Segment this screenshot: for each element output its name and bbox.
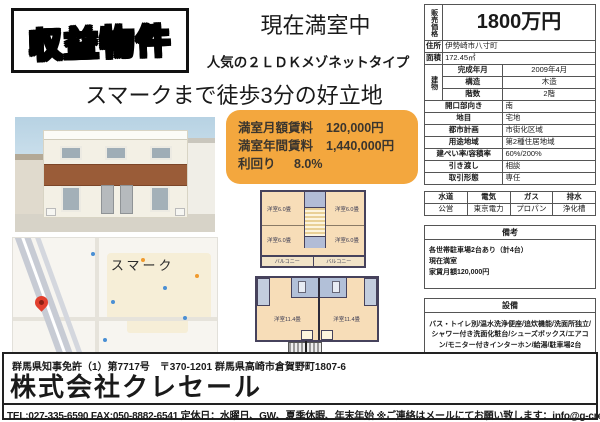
gas-label: ガス: [510, 192, 553, 204]
window-1f: [150, 186, 170, 212]
handover-label: 引き渡し: [425, 161, 503, 173]
bathtub-icon: [298, 281, 306, 293]
photo-main-building: [43, 130, 188, 218]
electricity-value: 東京電力: [467, 204, 510, 216]
equipment-box: 設備 バス・トイレ別/温水洗浄便座/追炊機能/洗面所独立/シャワー付き洗面化粧台…: [424, 298, 596, 361]
gas-value: プロパン: [510, 204, 553, 216]
floorplan-closet: [257, 278, 270, 306]
remarks-body: 各世帯駐車場2台あり（計4台） 現在満室 家賃月額120,000円: [425, 240, 595, 288]
table-row: 構造 木造: [425, 77, 596, 89]
handover-value: 相談: [503, 161, 596, 173]
floorplan-closet: [364, 278, 377, 306]
floors-label: 階数: [443, 89, 503, 101]
room-label: 洋室11.4畳: [333, 315, 360, 323]
floorplan-2f: 洋室6.0畳 洋室6.0畳 洋室6.0畳 洋室6.0畳 バルコニー バルコニー: [260, 190, 366, 268]
land-category-value: 宅地: [503, 113, 596, 125]
table-row: 取引形態 専任: [425, 173, 596, 185]
area-value: 172.45㎡: [443, 53, 596, 65]
map-poi-dot: [111, 300, 115, 304]
price-row: 販売価格 1800万円: [425, 5, 596, 41]
room-label: 洋室6.0畳: [335, 205, 359, 213]
balcony-band: [44, 164, 187, 186]
table-row: 開口部向き 南: [425, 101, 596, 113]
transaction-type-value: 専任: [503, 173, 596, 185]
building-fascia: [44, 131, 187, 140]
map-road: [95, 238, 99, 354]
floorplan-closet: [305, 192, 325, 208]
badge-label: 収益物件: [27, 14, 173, 68]
zoning-label: 用途地域: [425, 137, 503, 149]
balcony-label: バルコニー: [262, 257, 314, 266]
building-label: 建物: [425, 65, 443, 101]
floorplan-entrance: [321, 330, 333, 340]
utilities-header-row: 水道 電気 ガス 排水: [425, 192, 596, 204]
built-date-label: 完成年月: [443, 65, 503, 77]
window-2f: [150, 146, 172, 160]
land-category-label: 地目: [425, 113, 503, 125]
rent-annual-value: 1,440,000円: [326, 137, 394, 155]
utilities-value-row: 公営 東京電力 プロパン 浄化槽: [425, 204, 596, 216]
headline-status: 現在満室中: [218, 8, 413, 40]
window-2f: [105, 146, 127, 160]
yield-value: 8.0%: [294, 155, 323, 173]
rent-summary-box: 満室月額賃料 120,000円 満室年間賃料 1,440,000円 利回り 8.…: [226, 110, 418, 184]
table-row: 地目 宅地: [425, 113, 596, 125]
room-label: 洋室6.0畳: [267, 236, 291, 244]
city-planning-label: 都市計画: [425, 125, 503, 137]
price-value: 1800万円: [443, 5, 596, 41]
floorplan-stairs: [304, 192, 326, 248]
balcony-label: バルコニー: [314, 257, 365, 266]
facing-value: 南: [503, 101, 596, 113]
income-property-badge: 収益物件: [11, 8, 189, 73]
company-footer: 群馬県知事免許（1）第7717号 〒370-1201 群馬県高崎市倉賀野町180…: [2, 352, 598, 420]
floorplan-party-wall: [318, 278, 320, 340]
headline-location: スマークまで徒歩3分の好立地: [48, 78, 420, 110]
table-row: 住所 伊勢崎市八寸町: [425, 41, 596, 53]
balcony-strip: バルコニー バルコニー: [262, 255, 364, 266]
headline-subtitle: 人気の２ＬＤＫメゾネットタイプ: [194, 51, 422, 71]
remarks-line: 各世帯駐車場2台あり（計4台）: [429, 245, 591, 256]
floorplan-1f: 洋室11.4畳 洋室11.4畳: [255, 276, 379, 342]
address-value: 伊勢崎市八寸町: [443, 41, 596, 53]
rent-annual-label: 満室年間賃料: [238, 137, 326, 155]
area-label: 面積: [425, 53, 443, 65]
property-details-column: 販売価格 1800万円 住所 伊勢崎市八寸町 面積 172.45㎡ 建物 完成年…: [424, 4, 596, 384]
ac-unit: [46, 208, 56, 216]
yield-label: 利回り: [238, 155, 294, 173]
address-label: 住所: [425, 41, 443, 53]
table-row: 都市計画 市街化区域: [425, 125, 596, 137]
zoning-value: 第2種住居地域: [503, 137, 596, 149]
city-planning-value: 市街化区域: [503, 125, 596, 137]
water-value: 公営: [425, 204, 468, 216]
window-2f: [60, 146, 82, 160]
table-row: 面積 172.45㎡: [425, 53, 596, 65]
water-label: 水道: [425, 192, 468, 204]
facing-label: 開口部向き: [425, 101, 503, 113]
rent-monthly-value: 120,000円: [326, 119, 384, 137]
drainage-label: 排水: [553, 192, 596, 204]
transaction-type-label: 取引形態: [425, 173, 503, 185]
map-poi-dot: [163, 286, 167, 290]
rent-row: 利回り 8.0%: [238, 155, 406, 173]
remarks-line: 現在満室: [429, 256, 591, 267]
building-photo: [15, 117, 215, 232]
electricity-label: 電気: [467, 192, 510, 204]
rent-monthly-label: 満室月額賃料: [238, 119, 326, 137]
floorplan-closet: [305, 236, 325, 248]
map-shop-dot: [141, 258, 145, 262]
rent-row: 満室月額賃料 120,000円: [238, 119, 406, 137]
equipment-title: 設備: [425, 299, 595, 313]
structure-label: 構造: [443, 77, 503, 89]
table-row: 用途地域 第2種住居地域: [425, 137, 596, 149]
window-1f: [61, 186, 81, 212]
price-label: 販売価格: [425, 5, 443, 41]
floors-value: 2階: [503, 89, 596, 101]
property-table: 販売価格 1800万円 住所 伊勢崎市八寸町 面積 172.45㎡ 建物 完成年…: [424, 4, 596, 185]
room-label: 洋室6.0畳: [335, 236, 359, 244]
table-row: 階数 2階: [425, 89, 596, 101]
table-row: 建ぺい率/容積率 60%/200%: [425, 149, 596, 161]
license-line: 群馬県知事免許（1）第7717号 〒370-1201 群馬県高崎市倉賀野町180…: [4, 354, 596, 373]
utilities-table: 水道 電気 ガス 排水 公営 東京電力 プロパン 浄化槽: [424, 191, 596, 216]
flyer-page: 収益物件 現在満室中 人気の２ＬＤＫメゾネットタイプ スマークまで徒歩3分の好立…: [0, 0, 600, 422]
bathtub-icon: [332, 281, 340, 293]
room-label: 洋室6.0畳: [267, 205, 291, 213]
structure-value: 木造: [503, 77, 596, 89]
room-label: 洋室11.4畳: [274, 315, 301, 323]
built-date-value: 2009年4月: [503, 65, 596, 77]
ac-unit: [175, 208, 185, 216]
coverage-ratio-label: 建ぺい率/容積率: [425, 149, 503, 161]
table-row: 引き渡し 相談: [425, 161, 596, 173]
map-poi-dot: [91, 252, 95, 256]
rent-row: 満室年間賃料 1,440,000円: [238, 137, 406, 155]
remarks-box: 備考 各世帯駐車場2台あり（計4台） 現在満室 家賃月額120,000円: [424, 225, 596, 289]
entrance-door: [120, 185, 133, 214]
contact-line: TEL:027-335-6590 FAX:050-8882-6541 定休日：水…: [4, 403, 596, 422]
coverage-ratio-value: 60%/200%: [503, 149, 596, 161]
remarks-line: 家賃月額120,000円: [429, 267, 591, 278]
table-row: 建物 完成年月 2009年4月: [425, 65, 596, 77]
map-poi-dot: [183, 316, 187, 320]
floorplan-entrance: [301, 330, 313, 340]
drainage-value: 浄化槽: [553, 204, 596, 216]
map-poi-dot: [103, 338, 107, 342]
map-shop-dot: [195, 274, 199, 278]
remarks-title: 備考: [425, 226, 595, 240]
company-name: 株式会社クレセール: [4, 373, 596, 403]
location-map: スマーク: [12, 237, 218, 355]
entrance-door: [101, 185, 114, 214]
